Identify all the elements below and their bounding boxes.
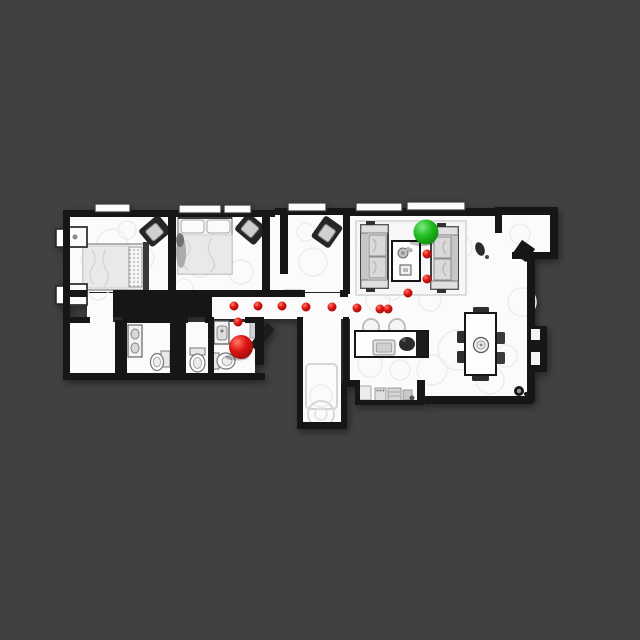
path-waypoint-dot [423,275,432,284]
path-waypoint-dot [384,305,393,314]
start-sphere [229,335,253,359]
path-waypoint-dot [230,302,239,311]
coffee-table [392,241,420,281]
goal-sphere [414,220,439,245]
path-waypoint-dot [328,303,337,312]
path-waypoint-dot [376,305,385,314]
bed-1 [83,242,149,292]
path-waypoint-dot [254,302,263,311]
topdown-map-viewport [0,0,640,640]
path-waypoint-dot [353,304,362,313]
nightstand-top [56,227,87,247]
bed-2 [176,214,232,274]
path-waypoint-dot [278,302,287,311]
path-waypoint-dot [404,289,413,298]
path-waypoint-dot [302,303,311,312]
path-waypoint-dot [234,318,243,327]
toilet-2 [190,348,205,372]
entry-object-small [485,255,489,259]
sofa-left [361,221,388,292]
floorplan-canvas [0,0,640,640]
path-waypoint-dot [423,250,432,259]
bathroom-vanity [128,325,142,357]
